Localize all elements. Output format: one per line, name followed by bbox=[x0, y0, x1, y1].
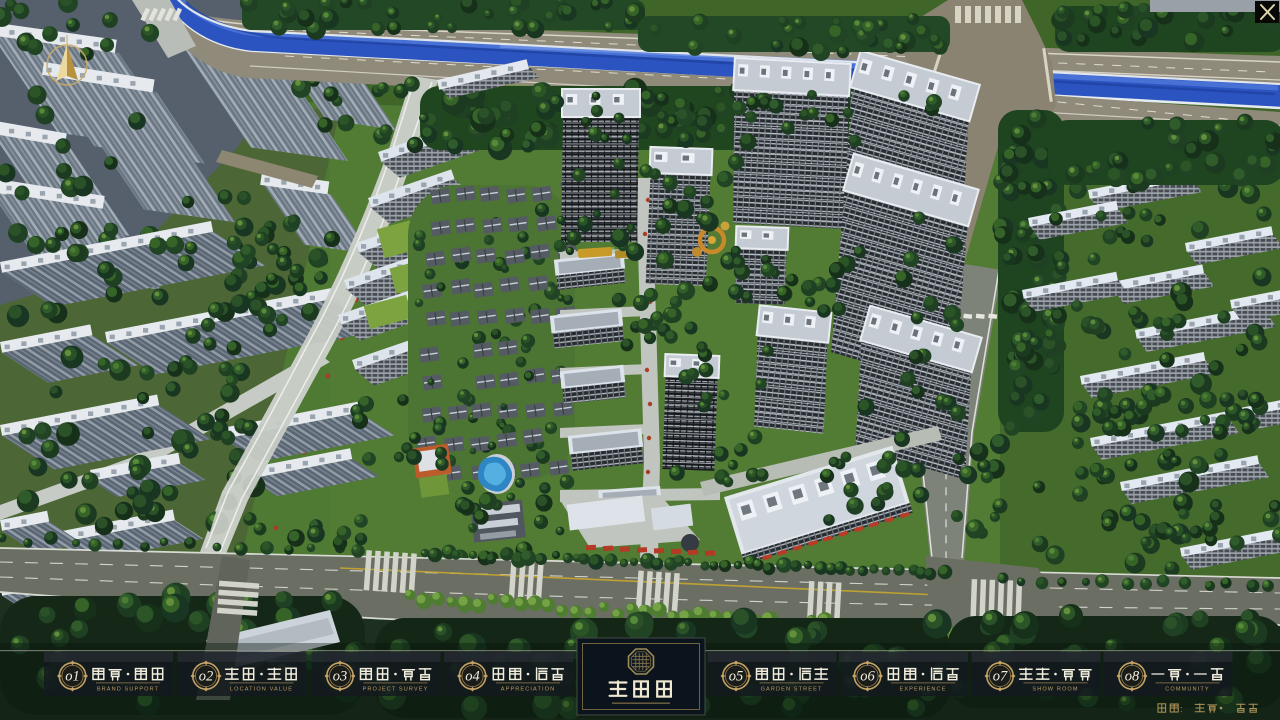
svg-text:PROJECT SURVEY: PROJECT SURVEY bbox=[363, 687, 429, 693]
svg-text:o5: o5 bbox=[729, 669, 744, 685]
svg-text:o7: o7 bbox=[993, 669, 1008, 685]
svg-text:o3: o3 bbox=[333, 669, 348, 685]
svg-text:BRAND SUPPORT: BRAND SUPPORT bbox=[97, 687, 159, 693]
svg-text:COMMUNITY: COMMUNITY bbox=[1165, 687, 1209, 693]
svg-text:o2: o2 bbox=[199, 669, 214, 685]
svg-text:o6: o6 bbox=[860, 669, 875, 685]
svg-text:SHOW ROOM: SHOW ROOM bbox=[1032, 687, 1078, 693]
svg-text:o8: o8 bbox=[1125, 669, 1140, 685]
svg-text:LOCATION VALUE: LOCATION VALUE bbox=[230, 687, 293, 693]
svg-text:APPRECIATION: APPRECIATION bbox=[501, 687, 555, 693]
svg-text:GARDEN STREET: GARDEN STREET bbox=[761, 687, 823, 693]
svg-text:o4: o4 bbox=[465, 669, 480, 685]
svg-text:o1: o1 bbox=[65, 669, 80, 685]
svg-text::: : bbox=[1180, 704, 1183, 714]
svg-text:EXPERIENCE: EXPERIENCE bbox=[899, 687, 946, 693]
